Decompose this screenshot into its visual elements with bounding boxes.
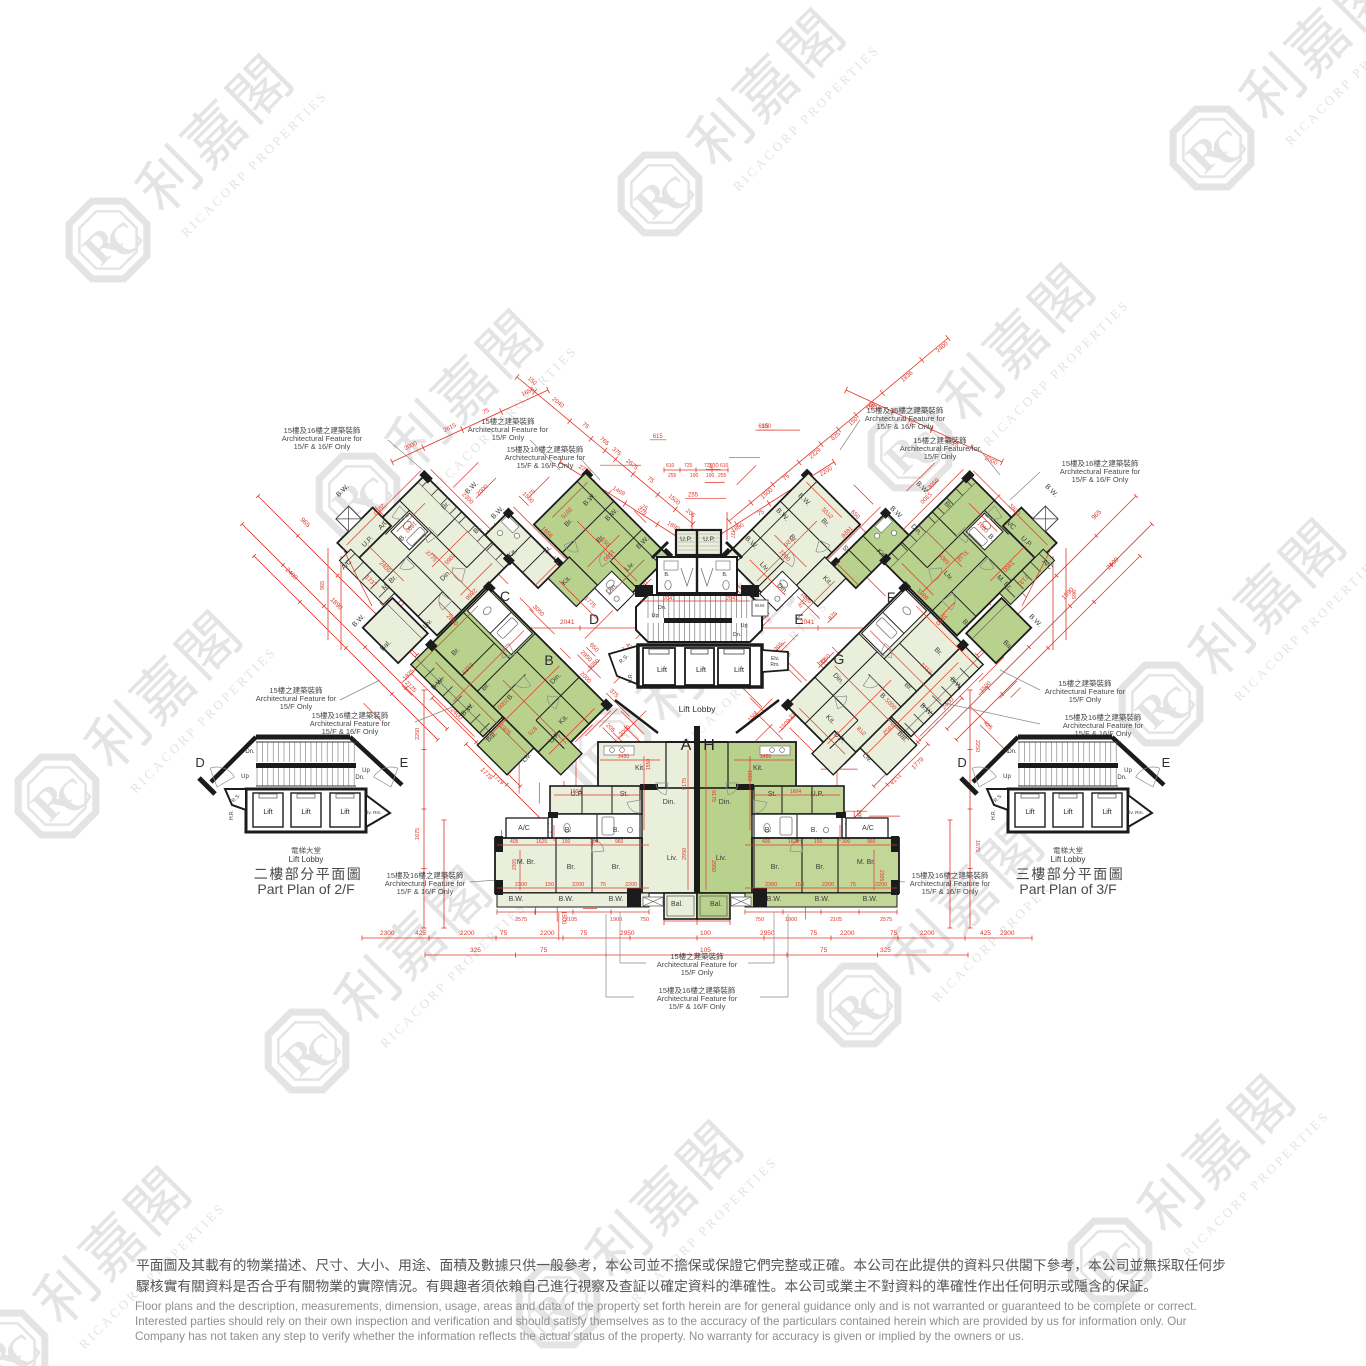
svg-text:100: 100: [690, 473, 699, 479]
svg-text:2200: 2200: [822, 882, 834, 888]
svg-text:U.P.: U.P.: [811, 791, 824, 798]
svg-text:St.: St.: [768, 791, 777, 798]
svg-text:1625: 1625: [536, 839, 547, 845]
svg-text:75: 75: [810, 930, 818, 937]
svg-text:Dn.: Dn.: [733, 632, 742, 638]
svg-text:A: A: [681, 737, 692, 754]
svg-text:Up: Up: [362, 768, 370, 774]
svg-text:Interested parties should rely: Interested parties should rely on their …: [135, 1315, 1187, 1328]
svg-text:Br.: Br.: [567, 864, 576, 871]
svg-text:150: 150: [545, 882, 554, 888]
svg-text:B.: B.: [722, 572, 728, 578]
svg-text:750: 750: [640, 917, 649, 923]
svg-text:2305: 2305: [878, 870, 884, 881]
svg-text:150: 150: [814, 839, 823, 845]
svg-text:2200: 2200: [920, 930, 935, 937]
svg-text:2300: 2300: [1000, 930, 1015, 937]
svg-text:A/C: A/C: [518, 825, 530, 832]
svg-text:2950: 2950: [682, 848, 688, 860]
svg-text:960: 960: [615, 839, 624, 845]
svg-text:Lift: Lift: [734, 665, 745, 674]
svg-text:150: 150: [848, 416, 860, 427]
svg-text:15/F Only: 15/F Only: [681, 968, 714, 977]
svg-text:Dn.: Dn.: [1117, 775, 1127, 781]
svg-text:300: 300: [842, 839, 851, 845]
svg-text:610: 610: [666, 463, 675, 469]
svg-text:M. Br.: M. Br.: [517, 859, 535, 866]
svg-text:2329: 2329: [808, 447, 823, 461]
svg-text:Part Plan of 3/F: Part Plan of 3/F: [1019, 881, 1116, 897]
svg-text:1900: 1900: [610, 917, 622, 923]
svg-text:G: G: [834, 651, 845, 667]
svg-text:2041: 2041: [560, 619, 575, 626]
svg-text:1890: 1890: [731, 522, 746, 534]
svg-text:E: E: [794, 611, 803, 627]
svg-text:Rm.: Rm.: [770, 662, 779, 668]
svg-text:Floor plans and the descriptio: Floor plans and the description, measure…: [135, 1300, 1197, 1313]
svg-text:Lift: Lift: [657, 665, 668, 674]
svg-text:405: 405: [510, 839, 519, 845]
svg-text:2105: 2105: [830, 917, 842, 923]
svg-text:Bal.: Bal.: [671, 901, 683, 908]
svg-text:B.: B.: [765, 827, 772, 834]
svg-text:1779: 1779: [910, 756, 925, 771]
svg-text:75: 75: [850, 882, 856, 888]
svg-text:Br.: Br.: [612, 864, 621, 871]
svg-text:2575: 2575: [880, 917, 892, 923]
svg-text:3450: 3450: [760, 754, 771, 760]
svg-text:Lift: Lift: [263, 809, 272, 816]
svg-text:M. Br.: M. Br.: [857, 859, 875, 866]
svg-text:D: D: [589, 611, 599, 627]
svg-text:2950: 2950: [760, 930, 775, 937]
svg-text:U.P.: U.P.: [571, 791, 584, 798]
svg-text:1719: 1719: [491, 773, 505, 787]
svg-text:75: 75: [890, 930, 898, 937]
svg-text:425: 425: [982, 720, 994, 732]
svg-text:255: 255: [688, 493, 699, 499]
svg-text:Lift Lobby: Lift Lobby: [289, 855, 324, 864]
svg-text:965: 965: [1070, 590, 1076, 599]
svg-text:電梯大堂: 電梯大堂: [291, 845, 321, 855]
svg-text:W.M.: W.M.: [755, 603, 765, 608]
svg-text:Din.: Din.: [719, 799, 732, 806]
svg-text:H.R.: H.R.: [991, 810, 997, 820]
svg-text:Elv. Rm.: Elv. Rm.: [1126, 810, 1144, 816]
svg-text:Part Plan of 2/F: Part Plan of 2/F: [257, 881, 354, 897]
svg-text:965: 965: [320, 581, 326, 590]
svg-text:100: 100: [761, 424, 772, 430]
svg-text:300: 300: [590, 839, 599, 845]
svg-text:2250: 2250: [974, 740, 980, 752]
svg-text:2950: 2950: [620, 930, 635, 937]
svg-text:B.W.: B.W.: [559, 896, 574, 903]
svg-text:Dn.: Dn.: [245, 749, 255, 755]
svg-text:Lift: Lift: [1102, 809, 1111, 816]
svg-text:B.W.: B.W.: [815, 896, 830, 903]
svg-text:2400: 2400: [284, 566, 299, 581]
svg-text:Lift: Lift: [340, 809, 349, 816]
svg-text:U.P.: U.P.: [703, 536, 715, 543]
svg-text:405: 405: [762, 839, 771, 845]
svg-text:75: 75: [782, 473, 791, 482]
svg-text:100: 100: [709, 463, 720, 469]
svg-text:2400: 2400: [936, 341, 951, 355]
svg-text:1550: 1550: [746, 770, 752, 781]
svg-text:B.W.: B.W.: [509, 896, 524, 903]
svg-text:Liv.: Liv.: [667, 855, 677, 862]
svg-text:15/F & 16/F Only: 15/F & 16/F Only: [294, 442, 351, 451]
svg-text:15/F Only: 15/F Only: [1069, 695, 1102, 704]
svg-text:2575: 2575: [515, 917, 527, 923]
svg-text:255: 255: [718, 473, 727, 479]
svg-text:2300: 2300: [380, 930, 395, 937]
svg-text:Company has not taken any step: Company has not taken any step to verify…: [135, 1330, 1024, 1343]
svg-text:Up: Up: [1124, 768, 1132, 774]
svg-text:650: 650: [588, 642, 600, 654]
svg-text:B.W.: B.W.: [1043, 483, 1058, 498]
svg-text:Lift: Lift: [301, 809, 310, 816]
svg-text:75: 75: [600, 882, 606, 888]
svg-text:1604: 1604: [790, 789, 801, 795]
svg-text:425: 425: [415, 930, 426, 937]
svg-text:1500: 1500: [979, 680, 993, 694]
svg-text:325: 325: [880, 947, 891, 954]
svg-text:Din.: Din.: [663, 799, 676, 806]
svg-text:15/F & 16/F Only: 15/F & 16/F Only: [397, 887, 454, 896]
svg-text:1900: 1900: [785, 917, 797, 923]
svg-text:75: 75: [820, 947, 828, 954]
svg-text:Lift: Lift: [1063, 809, 1072, 816]
svg-text:三樓部分平面圖: 三樓部分平面圖: [1016, 866, 1125, 882]
svg-text:2300: 2300: [515, 882, 527, 888]
svg-text:15/F & 16/F Only: 15/F & 16/F Only: [669, 1002, 726, 1011]
svg-text:C: C: [500, 588, 510, 604]
svg-text:2105: 2105: [565, 917, 577, 923]
svg-text:965: 965: [299, 516, 312, 529]
svg-text:615: 615: [653, 434, 664, 440]
svg-text:St.: St.: [620, 791, 629, 798]
svg-text:150: 150: [562, 839, 571, 845]
svg-text:1500: 1500: [760, 487, 775, 501]
svg-text:725: 725: [684, 463, 693, 469]
svg-text:E: E: [400, 755, 409, 770]
svg-text:625: 625: [830, 431, 842, 442]
svg-text:2300: 2300: [765, 882, 777, 888]
svg-text:375: 375: [608, 688, 620, 700]
svg-text:A/C: A/C: [862, 825, 874, 832]
svg-text:425: 425: [980, 930, 991, 937]
svg-text:H: H: [703, 737, 715, 754]
svg-text:二樓部分平面圖: 二樓部分平面圖: [254, 866, 363, 882]
svg-text:15/F & 16/F Only: 15/F & 16/F Only: [922, 887, 979, 896]
svg-text:Br.: Br.: [771, 864, 780, 871]
svg-text:B.: B.: [613, 827, 620, 834]
svg-text:1500: 1500: [560, 911, 566, 925]
svg-text:1675: 1675: [415, 828, 421, 840]
svg-text:9175: 9175: [682, 778, 688, 790]
svg-text:驟核實有關資料是否合乎有關物業的實際情況。有興趣者須依賴自己: 驟核實有關資料是否合乎有關物業的實際情況。有興趣者須依賴自己進行視察及查証以確定…: [136, 1278, 1157, 1294]
svg-text:B.W.: B.W.: [767, 896, 782, 903]
svg-text:E: E: [1162, 755, 1171, 770]
svg-text:15/F Only: 15/F Only: [924, 452, 957, 461]
svg-text:965: 965: [1090, 509, 1103, 522]
svg-text:Kit.: Kit.: [753, 765, 763, 772]
svg-text:Kit.: Kit.: [635, 765, 645, 772]
svg-text:3450: 3450: [618, 754, 629, 760]
svg-text:75: 75: [500, 930, 508, 937]
svg-text:Lift: Lift: [696, 665, 707, 674]
svg-text:2041: 2041: [663, 596, 675, 602]
svg-text:D: D: [957, 755, 966, 770]
svg-text:1779: 1779: [479, 766, 494, 781]
svg-text:100: 100: [706, 473, 715, 479]
svg-text:2041: 2041: [726, 596, 738, 602]
svg-text:2200: 2200: [840, 930, 855, 937]
svg-text:D: D: [195, 755, 204, 770]
svg-text:15/F & 16/F Only: 15/F & 16/F Only: [517, 461, 574, 470]
svg-text:Lift: Lift: [1025, 809, 1034, 816]
svg-text:325: 325: [470, 947, 481, 954]
svg-text:2200: 2200: [819, 466, 834, 478]
svg-text:Up: Up: [740, 623, 747, 629]
svg-text:150: 150: [795, 882, 804, 888]
svg-text:1625: 1625: [788, 839, 799, 845]
svg-text:1675: 1675: [974, 840, 980, 852]
svg-text:2200: 2200: [572, 882, 584, 888]
svg-text:2300: 2300: [919, 492, 933, 506]
svg-text:H.R.: H.R.: [229, 810, 235, 820]
svg-text:B.W.: B.W.: [863, 896, 878, 903]
svg-text:H.R.: H.R.: [628, 673, 634, 683]
svg-text:Up: Up: [241, 774, 249, 780]
svg-text:B.: B.: [664, 572, 670, 578]
svg-text:75: 75: [540, 947, 548, 954]
svg-text:15/F & 16/F Only: 15/F & 16/F Only: [1072, 475, 1129, 484]
svg-text:F: F: [887, 589, 896, 605]
svg-text:2200: 2200: [875, 882, 887, 888]
svg-text:2040: 2040: [551, 397, 566, 411]
svg-text:1719: 1719: [889, 773, 903, 787]
svg-text:2400: 2400: [1105, 556, 1120, 571]
svg-text:255: 255: [668, 473, 677, 479]
svg-text:1836: 1836: [900, 370, 915, 384]
svg-text:Dn.: Dn.: [1007, 749, 1017, 755]
svg-text:2250: 2250: [415, 728, 421, 740]
svg-text:15/F & 16/F Only: 15/F & 16/F Only: [877, 422, 934, 431]
svg-text:B.: B.: [811, 827, 818, 834]
svg-text:Br.: Br.: [816, 864, 825, 871]
svg-text:Dn.: Dn.: [658, 605, 667, 611]
svg-text:B: B: [544, 652, 553, 668]
svg-text:75: 75: [646, 476, 655, 485]
svg-text:電梯大堂: 電梯大堂: [1053, 845, 1083, 855]
svg-text:U.P.: U.P.: [680, 536, 692, 543]
svg-text:B.: B.: [565, 827, 572, 834]
svg-text:875: 875: [828, 610, 840, 622]
svg-text:9175: 9175: [710, 790, 716, 802]
svg-text:75: 75: [580, 930, 588, 937]
svg-text:2200: 2200: [540, 930, 555, 937]
svg-text:100: 100: [700, 930, 711, 937]
svg-text:Lift Lobby: Lift Lobby: [1051, 855, 1086, 864]
svg-text:Bal.: Bal.: [710, 901, 722, 908]
svg-text:1500: 1500: [667, 494, 682, 508]
svg-text:Lift Lobby: Lift Lobby: [679, 704, 717, 714]
svg-text:750: 750: [755, 917, 764, 923]
svg-text:2200: 2200: [625, 882, 637, 888]
svg-text:平面圖及其載有的物業描述、尺寸、大小、用途、面積及數據只供一: 平面圖及其載有的物業描述、尺寸、大小、用途、面積及數據只供一般參考，本公司並不擔…: [136, 1257, 1226, 1273]
svg-text:75: 75: [581, 422, 590, 431]
svg-text:610: 610: [720, 463, 729, 469]
svg-text:Up: Up: [1003, 774, 1011, 780]
svg-text:15/F Only: 15/F Only: [280, 702, 313, 711]
svg-text:Liv.: Liv.: [716, 855, 726, 862]
svg-text:Dn.: Dn.: [355, 775, 365, 781]
svg-text:Up: Up: [651, 613, 658, 619]
svg-text:2200: 2200: [460, 930, 475, 937]
svg-text:1775: 1775: [583, 596, 597, 610]
svg-text:Elv. Rm.: Elv. Rm.: [364, 810, 382, 816]
svg-text:960: 960: [867, 839, 876, 845]
svg-text:1550: 1550: [646, 759, 652, 770]
svg-text:1890: 1890: [329, 596, 344, 611]
svg-text:15/F Only: 15/F Only: [492, 433, 525, 442]
svg-text:B.W.: B.W.: [609, 896, 624, 903]
